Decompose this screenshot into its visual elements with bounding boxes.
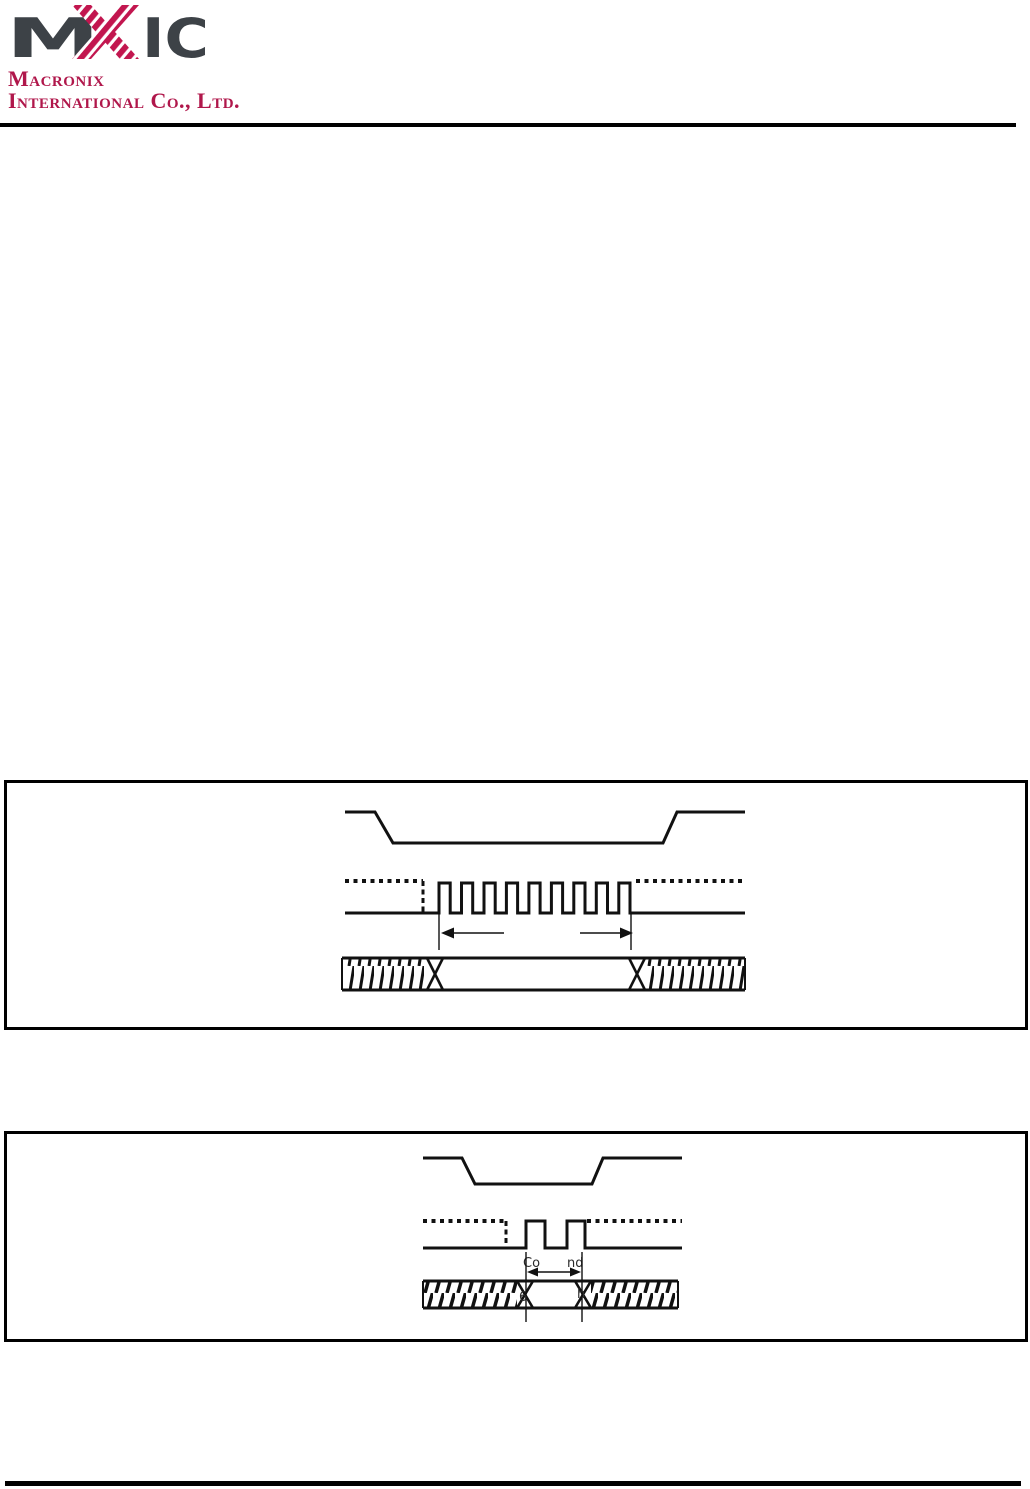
chip-select-waveform [423,1158,682,1184]
bus-hatch-right [645,960,744,989]
bus-crossover-right [629,958,645,990]
bus-hatch-right [591,1283,677,1307]
figure1-box [4,780,1028,1030]
bus-hatch-left [344,960,427,989]
clock-waveform [345,883,745,913]
figure1-diagram [4,780,1028,1030]
measure-arrow-left-head [441,928,454,939]
company-suffix: International Co., Ltd. [8,90,240,112]
command-label-fragment-right: nd [567,1256,584,1271]
company-name: Macronix [8,68,104,90]
bus-value-fragment-left: 6 [519,1290,527,1305]
datasheet-page: M IC Macronix International Co., Ltd. [0,0,1030,1489]
header: M IC Macronix International Co., Ltd. [0,0,400,120]
bottom-rule [5,1481,1021,1486]
figure2-diagram: Co nd 6 h [4,1131,1028,1342]
chip-select-waveform [345,812,745,843]
bus-hatch-left [424,1283,517,1307]
logo-letters-ic: IC [142,7,209,63]
clock-waveform [423,1221,682,1248]
bus-crossover-left [427,958,443,990]
mxic-logo: M IC [6,3,221,63]
bus-value-fragment-right: h [577,1287,585,1302]
top-rule [0,123,1016,127]
figure2-box: Co nd 6 h [4,1131,1028,1342]
